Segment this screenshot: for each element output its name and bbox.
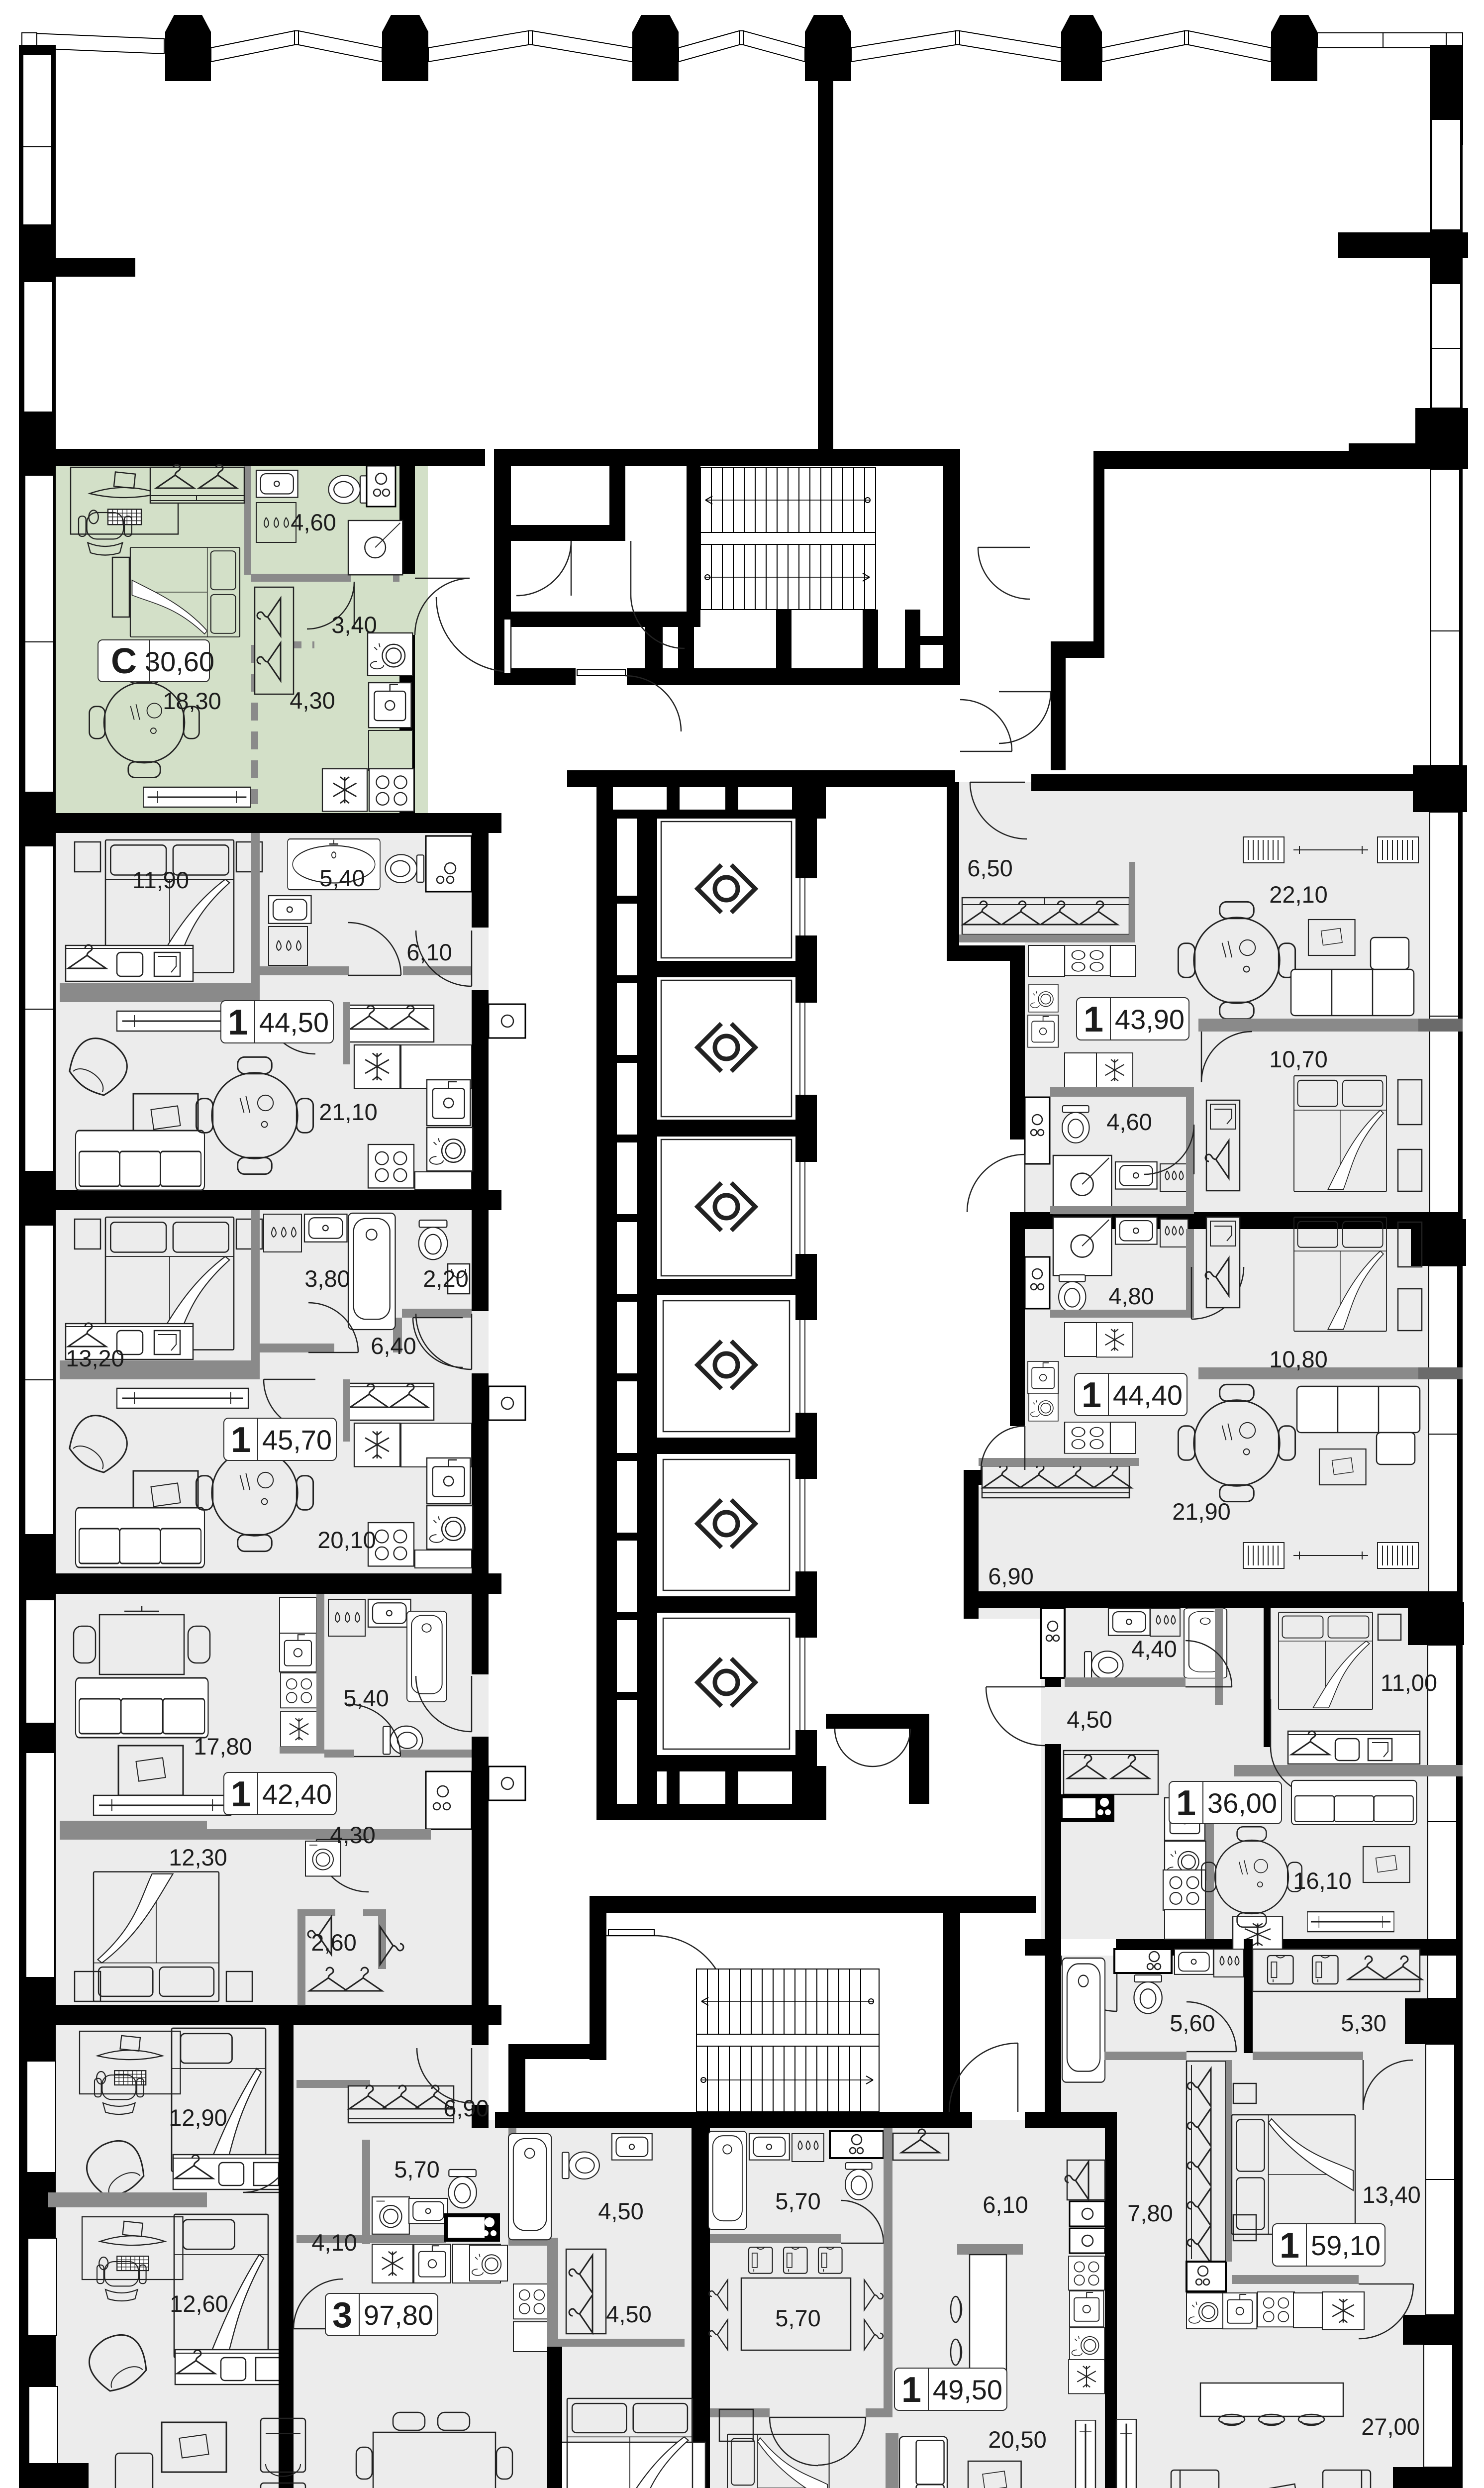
svg-text:43,90: 43,90 xyxy=(1115,1004,1185,1035)
svg-text:11,90: 11,90 xyxy=(132,867,189,893)
svg-text:21,10: 21,10 xyxy=(319,1099,378,1125)
svg-text:21,90: 21,90 xyxy=(1172,1498,1231,1525)
svg-text:44,50: 44,50 xyxy=(259,1007,329,1038)
svg-text:1: 1 xyxy=(1084,1000,1103,1039)
svg-text:5,70: 5,70 xyxy=(775,2188,820,2214)
svg-text:5,70: 5,70 xyxy=(394,2156,439,2182)
svg-text:3,40: 3,40 xyxy=(331,612,377,638)
svg-text:36,00: 36,00 xyxy=(1207,1787,1277,1819)
svg-text:6,10: 6,10 xyxy=(406,939,452,965)
svg-text:20,10: 20,10 xyxy=(317,1527,376,1553)
svg-text:5,70: 5,70 xyxy=(775,2305,820,2331)
svg-text:22,10: 22,10 xyxy=(1269,881,1328,908)
svg-text:44,40: 44,40 xyxy=(1113,1379,1183,1411)
svg-text:20,50: 20,50 xyxy=(988,2426,1047,2453)
svg-text:4,40: 4,40 xyxy=(1131,1636,1177,1662)
svg-text:5,60: 5,60 xyxy=(1170,2010,1215,2036)
svg-text:7,80: 7,80 xyxy=(1127,2200,1173,2226)
svg-text:12,30: 12,30 xyxy=(169,1844,227,1870)
svg-text:6,90: 6,90 xyxy=(443,2095,489,2121)
svg-text:1: 1 xyxy=(1280,2226,1299,2266)
svg-text:4,50: 4,50 xyxy=(606,2301,651,2327)
svg-text:1: 1 xyxy=(901,2370,921,2410)
svg-text:1: 1 xyxy=(231,1774,251,1814)
svg-text:4,30: 4,30 xyxy=(330,1822,375,1848)
svg-text:27,00: 27,00 xyxy=(1361,2413,1420,2440)
svg-text:13,40: 13,40 xyxy=(1362,2181,1421,2208)
svg-text:10,80: 10,80 xyxy=(1269,1346,1328,1372)
svg-text:42,40: 42,40 xyxy=(262,1778,332,1810)
svg-text:2,20: 2,20 xyxy=(423,1265,468,1292)
svg-text:11,00: 11,00 xyxy=(1381,1669,1437,1696)
svg-text:6,10: 6,10 xyxy=(983,2191,1028,2218)
svg-text:1: 1 xyxy=(1176,1783,1196,1823)
svg-text:3: 3 xyxy=(332,2295,352,2335)
svg-text:16,10: 16,10 xyxy=(1293,1867,1352,1894)
svg-text:6,40: 6,40 xyxy=(371,1333,416,1359)
svg-text:2,60: 2,60 xyxy=(311,1929,356,1956)
svg-text:4,60: 4,60 xyxy=(291,509,336,535)
svg-text:59,10: 59,10 xyxy=(1311,2230,1381,2261)
svg-text:4,60: 4,60 xyxy=(1106,1109,1152,1135)
svg-text:1: 1 xyxy=(228,1003,248,1042)
svg-text:45,70: 45,70 xyxy=(262,1424,332,1455)
svg-text:12,60: 12,60 xyxy=(170,2290,228,2317)
svg-text:13,20: 13,20 xyxy=(66,1345,124,1371)
svg-text:4,30: 4,30 xyxy=(290,687,335,714)
svg-text:3,80: 3,80 xyxy=(304,1265,350,1292)
svg-text:49,50: 49,50 xyxy=(933,2374,1002,2405)
svg-text:6,90: 6,90 xyxy=(988,1563,1033,1589)
svg-text:30,60: 30,60 xyxy=(145,646,214,677)
svg-text:17,80: 17,80 xyxy=(194,1733,252,1760)
svg-text:4,50: 4,50 xyxy=(1067,1706,1112,1733)
svg-text:97,80: 97,80 xyxy=(364,2299,433,2331)
svg-text:4,80: 4,80 xyxy=(1108,1283,1154,1309)
svg-text:4,10: 4,10 xyxy=(311,2229,357,2256)
svg-text:18,30: 18,30 xyxy=(163,688,221,714)
svg-text:1: 1 xyxy=(231,1420,251,1460)
svg-text:12,90: 12,90 xyxy=(169,2104,227,2131)
svg-text:10,70: 10,70 xyxy=(1269,1046,1328,1072)
svg-text:1: 1 xyxy=(1082,1375,1101,1415)
svg-text:С: С xyxy=(111,641,137,681)
svg-text:5,40: 5,40 xyxy=(319,865,365,891)
svg-text:4,50: 4,50 xyxy=(598,2198,643,2224)
svg-text:5,30: 5,30 xyxy=(1341,2010,1386,2036)
svg-text:6,50: 6,50 xyxy=(967,855,1012,881)
svg-text:5,40: 5,40 xyxy=(343,1685,389,1711)
